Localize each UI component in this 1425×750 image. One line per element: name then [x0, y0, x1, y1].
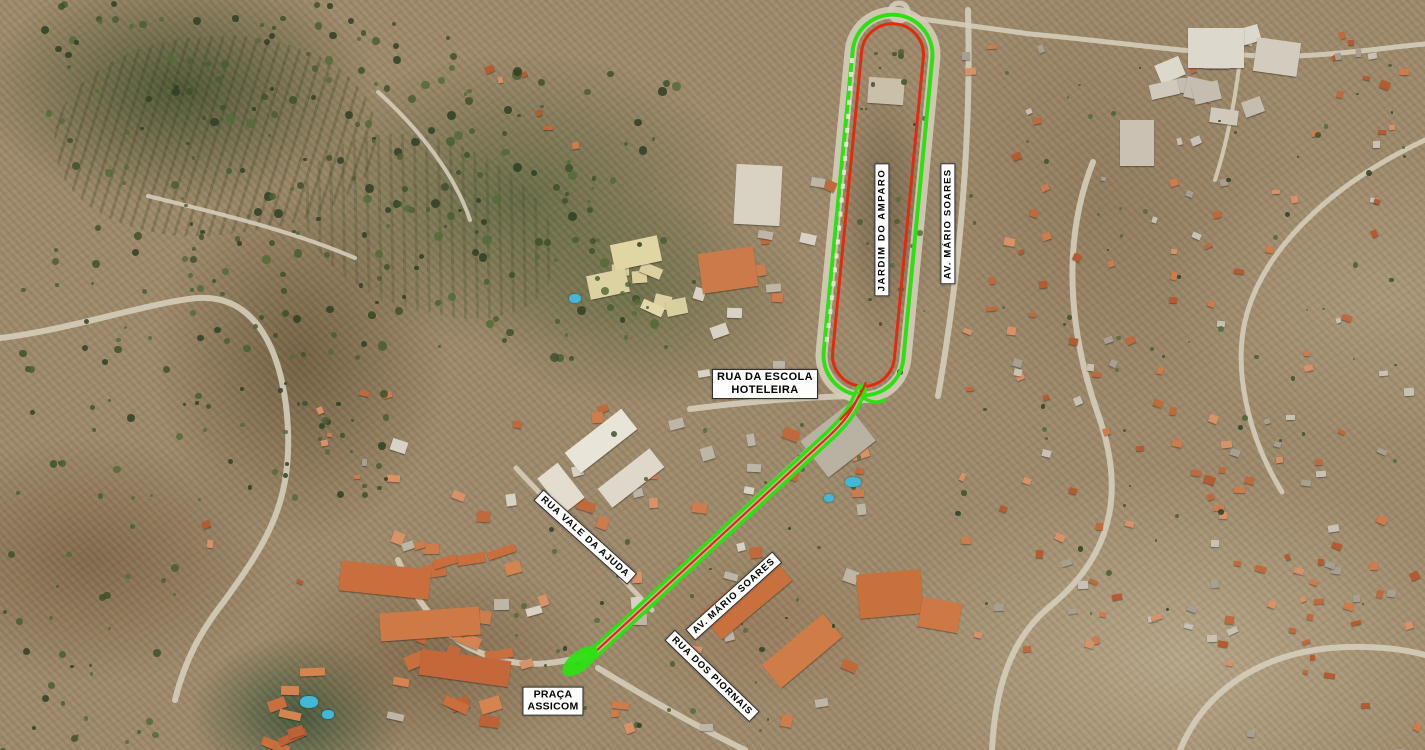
label-line: PRAÇA	[527, 689, 578, 701]
label-jardim-do-amparo: JARDIM DO AMPARO	[874, 164, 889, 297]
label-line: HOTELEIRA	[717, 384, 813, 397]
aerial-map: RUA DA ESCOLA HOTELEIRA JARDIM DO AMPARO…	[0, 0, 1425, 750]
label-line: RUA DA ESCOLA	[717, 371, 813, 384]
label-praca-assicom: PRAÇA ASSICOM	[522, 687, 583, 716]
label-rua-da-escola-hoteleira: RUA DA ESCOLA HOTELEIRA	[712, 369, 818, 399]
label-av-mario-soares-vertical: AV. MÁRIO SOARES	[940, 164, 955, 285]
label-line: ASSICOM	[527, 701, 578, 713]
route-diagonal-gap	[594, 390, 861, 653]
